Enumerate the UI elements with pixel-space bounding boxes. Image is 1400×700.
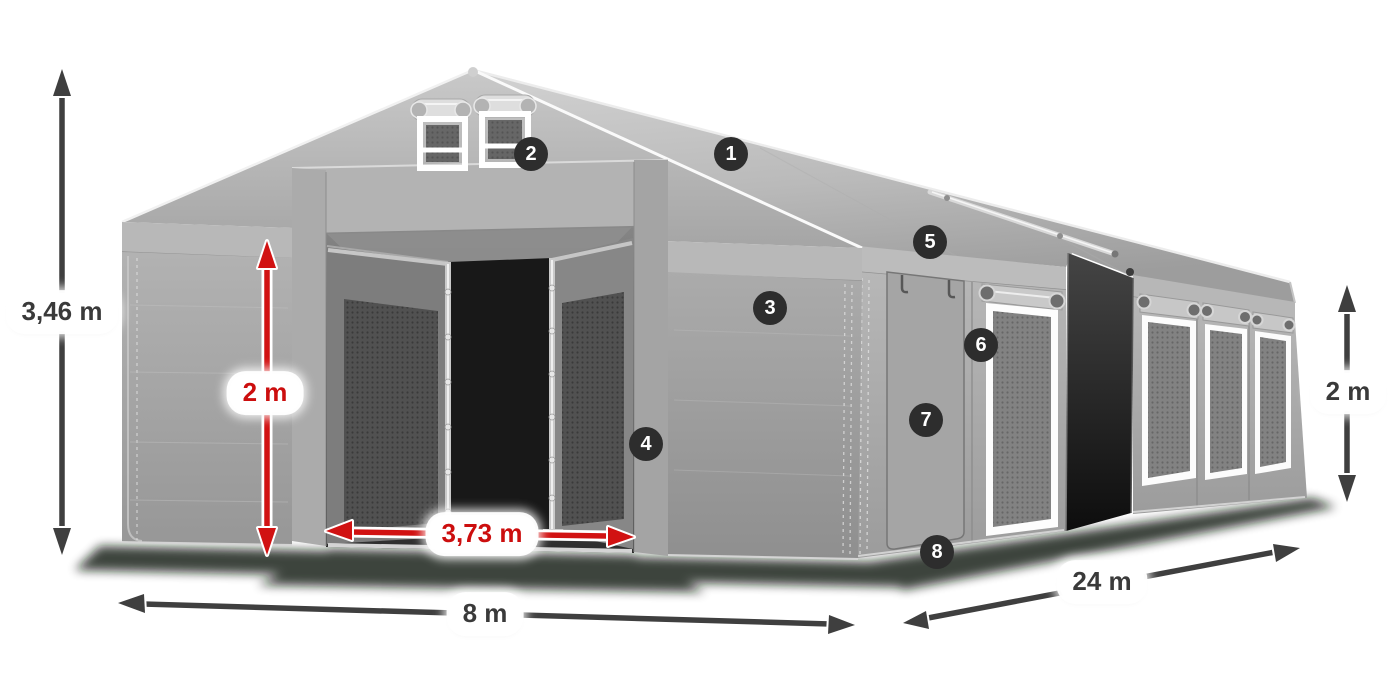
side-window-3 — [1201, 303, 1251, 480]
marker-8: 8 — [920, 535, 954, 569]
gap-corner-fitting — [1126, 268, 1134, 276]
tent-illustration — [0, 0, 1400, 700]
entrance-interior — [326, 225, 634, 553]
marker-6: 6 — [964, 328, 998, 362]
marker-3: 3 — [753, 291, 787, 325]
apex-cap — [468, 67, 478, 77]
dimension-label-side-wall-height: 2 m — [1313, 373, 1384, 411]
side-window-1 — [980, 284, 1065, 536]
interior-depth — [448, 258, 552, 537]
dimension-label-total-height: 3,46 m — [9, 293, 116, 331]
entrance-door-right — [552, 238, 633, 549]
side-window-2 — [1138, 294, 1201, 486]
dimension-label-entrance-height: 2 m — [230, 374, 301, 412]
marker-7: 7 — [909, 403, 943, 437]
dimension-label-front-width: 8 m — [450, 595, 521, 633]
gable-vent-left — [411, 99, 471, 168]
dimension-label-side-length: 24 m — [1059, 563, 1144, 601]
diagram-canvas: 3,46 m 2 m 3,73 m 8 m 24 m 2 m 1 2 3 4 5… — [0, 0, 1400, 700]
marker-4: 4 — [629, 427, 663, 461]
side-window-4 — [1252, 312, 1295, 474]
marker-2: 2 — [514, 137, 548, 171]
entrance-door-left — [327, 246, 448, 544]
marker-5: 5 — [913, 225, 947, 259]
marker-1: 1 — [714, 137, 748, 171]
open-bay-gap — [1066, 253, 1133, 531]
tent-front-section — [122, 67, 862, 559]
dimension-label-entrance-width: 3,73 m — [429, 515, 536, 553]
